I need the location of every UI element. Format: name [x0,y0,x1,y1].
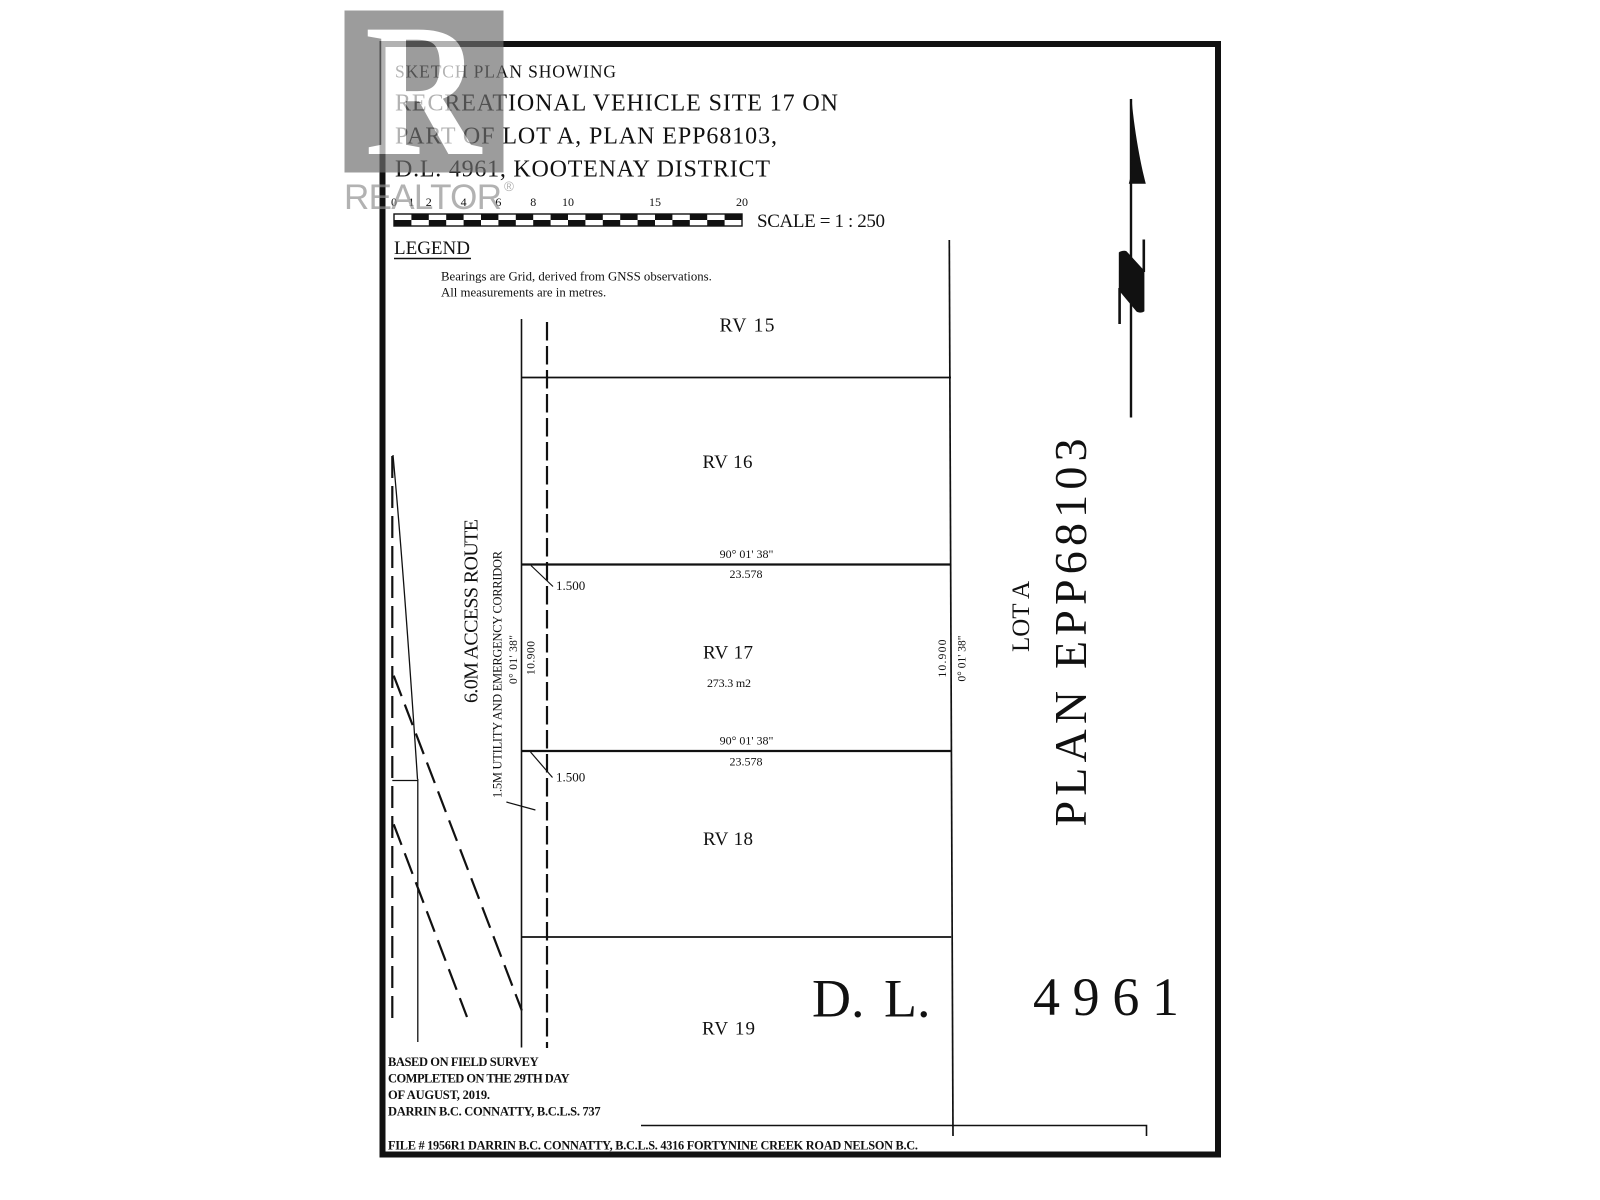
svg-text:DARRIN B.C. CONNATTY, B.C.L.S.: DARRIN B.C. CONNATTY, B.C.L.S. 737 [388,1105,601,1119]
svg-text:6.0M ACCESS ROUTE: 6.0M ACCESS ROUTE [461,519,483,703]
svg-text:15: 15 [649,195,661,209]
svg-text:All measurements are in metres: All measurements are in metres. [441,286,606,300]
svg-text:COMPLETED ON THE 29TH DAY: COMPLETED ON THE 29TH DAY [388,1072,570,1086]
svg-text:1.500: 1.500 [556,578,585,593]
svg-text:®: ® [504,179,514,194]
svg-text:SCALE = 1 : 250: SCALE = 1 : 250 [757,211,885,232]
svg-text:1.5M UTILITY AND EMERGENCY COR: 1.5M UTILITY AND EMERGENCY CORRIDOR [491,550,505,798]
svg-text:RV 17: RV 17 [703,643,753,664]
svg-text:RV 18: RV 18 [703,829,753,850]
svg-text:10.900: 10.900 [526,641,538,675]
svg-text:8: 8 [530,195,536,209]
svg-text:RV 19: RV 19 [702,1018,755,1039]
svg-text:PLAN EPP68103: PLAN EPP68103 [1045,439,1096,827]
svg-text:Bearings are Grid, derived fro: Bearings are Grid, derived from GNSS obs… [441,270,712,284]
svg-text:D.: D. [812,969,865,1029]
svg-text:REALTOR: REALTOR [344,178,502,217]
svg-text:OF AUGUST, 2019.: OF AUGUST, 2019. [388,1088,490,1102]
svg-text:0° 01' 38": 0° 01' 38" [508,635,520,684]
svg-text:BASED ON FIELD SURVEY: BASED ON FIELD SURVEY [388,1055,539,1069]
svg-text:L.: L. [884,969,931,1029]
svg-text:273.3 m2: 273.3 m2 [707,676,751,690]
svg-text:23.578: 23.578 [730,567,763,581]
svg-text:RV 16: RV 16 [703,452,753,473]
svg-text:10: 10 [562,195,574,209]
svg-text:10.900: 10.900 [937,639,949,677]
svg-text:R: R [365,0,483,196]
svg-text:LOT A: LOT A [1008,581,1035,652]
svg-text:20: 20 [736,195,748,209]
svg-text:90° 01' 38": 90° 01' 38" [720,734,774,748]
svg-text:23.578: 23.578 [730,755,763,769]
svg-text:LEGEND: LEGEND [394,238,470,259]
svg-text:90° 01' 38": 90° 01' 38" [720,547,774,561]
svg-text:FILE # 1956R1 DARRIN B.C. CONN: FILE # 1956R1 DARRIN B.C. CONNATTY, B.C.… [388,1139,918,1153]
svg-text:1.500: 1.500 [556,770,585,785]
svg-text:0° 01' 38": 0° 01' 38" [957,636,969,682]
svg-text:RV 15: RV 15 [720,316,775,337]
